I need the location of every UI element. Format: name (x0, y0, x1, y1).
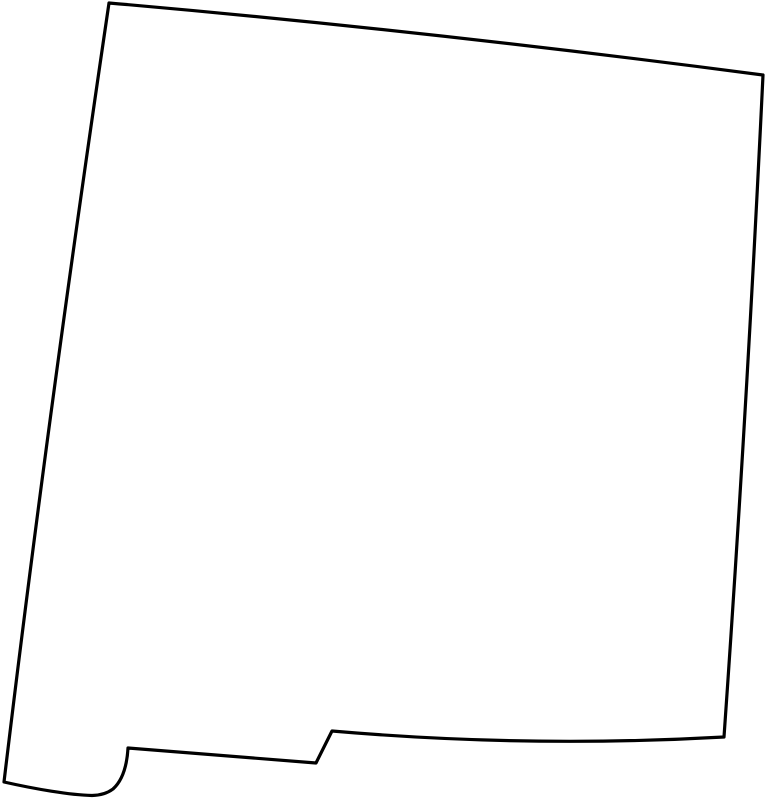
map-canvas (0, 0, 769, 800)
state-border-path (4, 3, 763, 796)
new-mexico-outline-map (0, 0, 769, 800)
